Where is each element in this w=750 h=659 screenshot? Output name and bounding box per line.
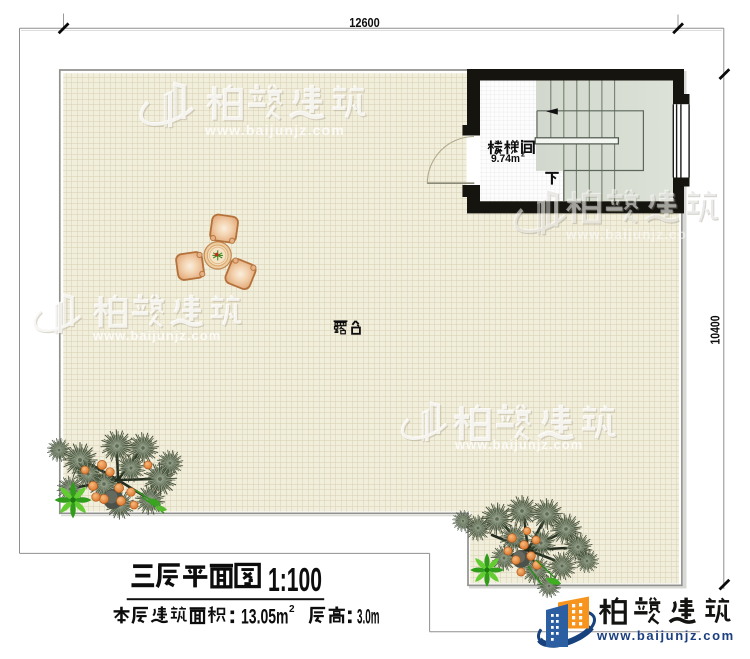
svg-text:10400: 10400 bbox=[708, 316, 723, 345]
svg-text:2: 2 bbox=[289, 604, 295, 615]
svg-text:3.0m: 3.0m bbox=[357, 606, 380, 629]
svg-text:9.74m: 9.74m bbox=[491, 153, 520, 165]
svg-text:www.baijunjz.com: www.baijunjz.com bbox=[204, 122, 345, 138]
svg-text:13.05m: 13.05m bbox=[241, 606, 289, 629]
svg-text:12600: 12600 bbox=[349, 15, 380, 30]
svg-text:www.baijunjz.com: www.baijunjz.com bbox=[92, 328, 221, 343]
svg-text:2: 2 bbox=[521, 152, 525, 159]
svg-text:www.baijunjz.com: www.baijunjz.com bbox=[596, 628, 735, 643]
svg-text:www.baijunjz.com: www.baijunjz.com bbox=[454, 437, 583, 452]
svg-text:1:100: 1:100 bbox=[268, 561, 322, 598]
svg-text:www.baijunjz.com: www.baijunjz.com bbox=[565, 227, 700, 242]
